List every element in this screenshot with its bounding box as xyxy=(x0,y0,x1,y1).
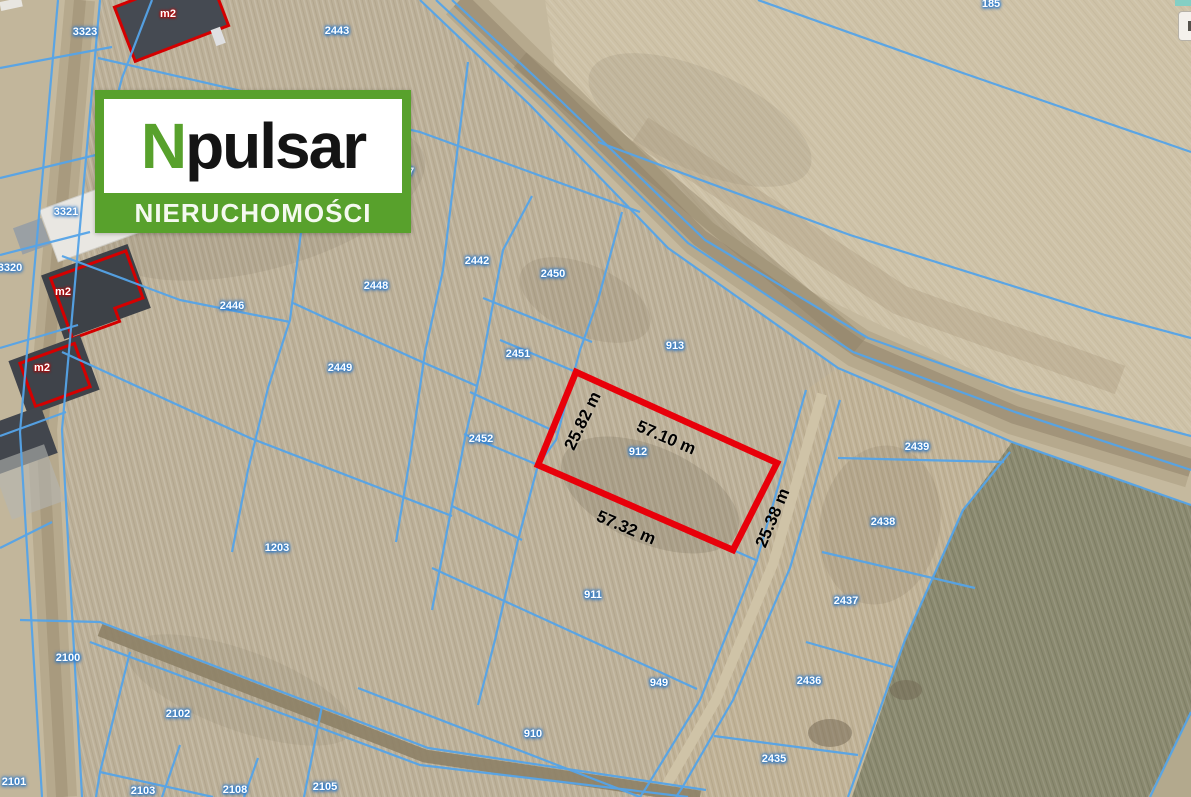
map-edge-artifact xyxy=(1175,0,1191,6)
map-control-button[interactable] xyxy=(1178,11,1191,41)
logo-wordmark: Npulsar xyxy=(104,99,402,193)
logo-name: pulsar xyxy=(185,114,365,178)
agency-logo: Npulsar NIERUCHOMOŚCI xyxy=(95,90,411,233)
logo-letter-n: N xyxy=(141,114,185,178)
aerial-map-canvas: 3323244318533213320472442245024482446245… xyxy=(0,0,1191,797)
logo-tagline: NIERUCHOMOŚCI xyxy=(104,193,402,233)
